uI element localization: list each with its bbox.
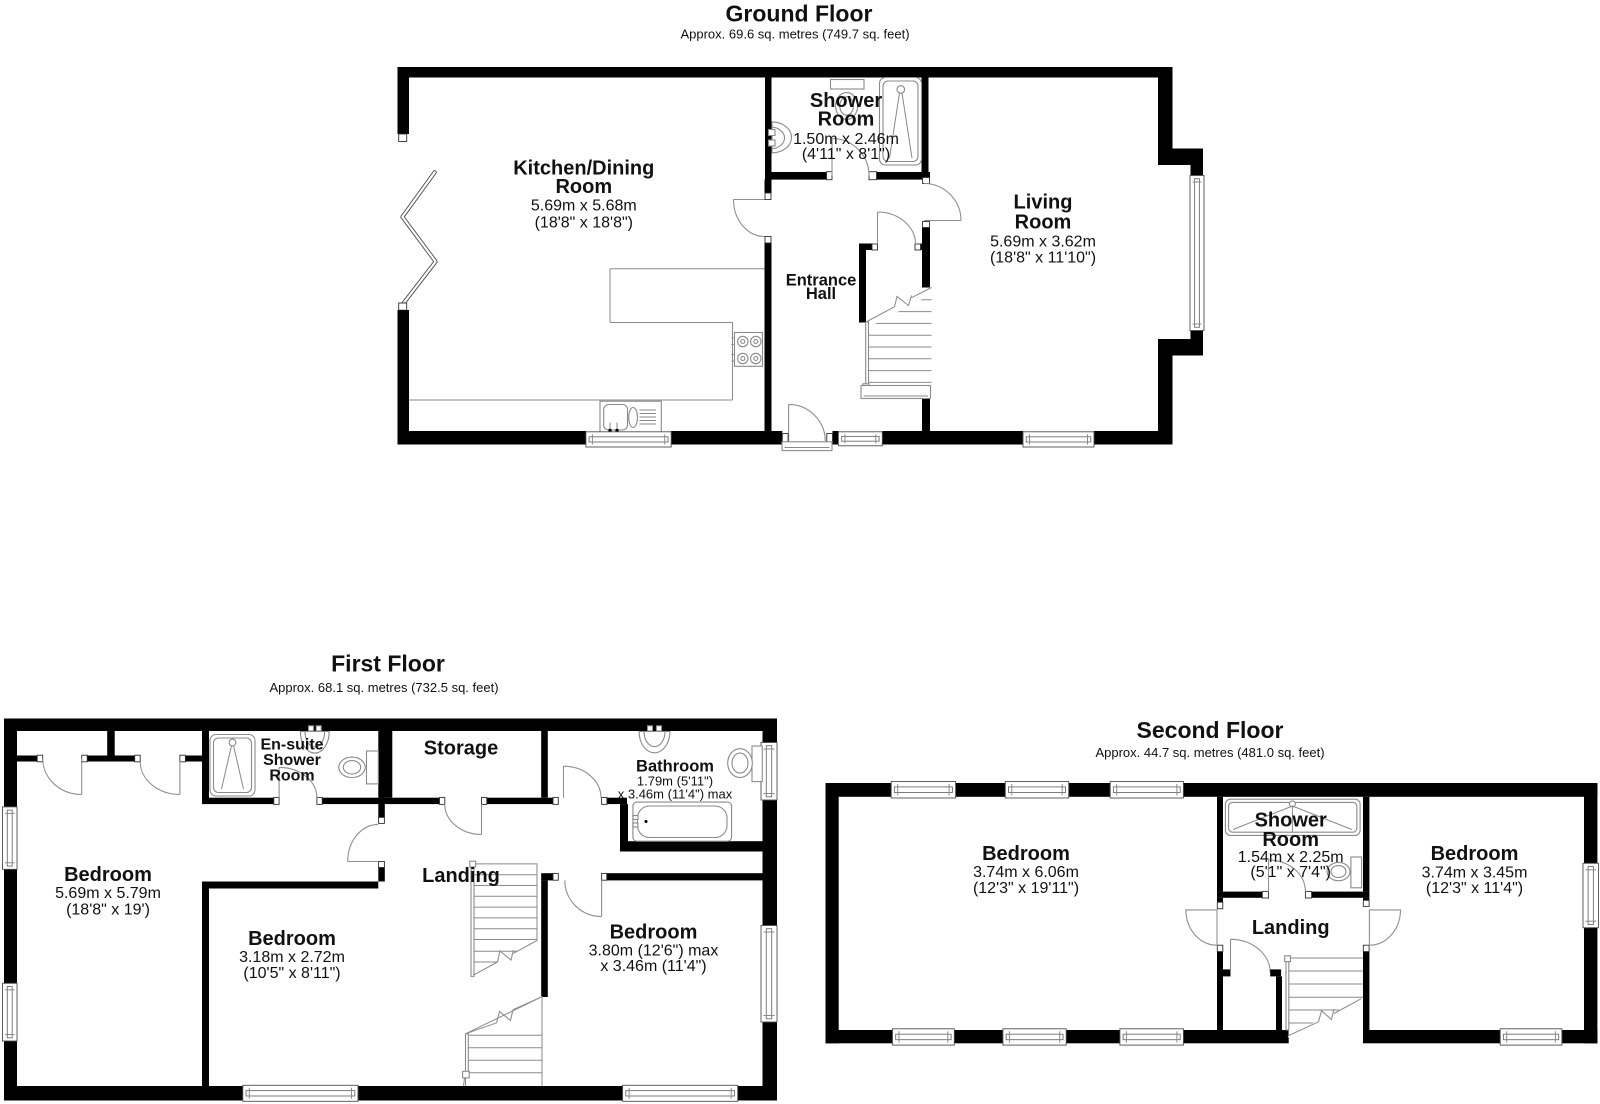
svg-text:Approx. 68.1 sq. metres (732.5: Approx. 68.1 sq. metres (732.5 sq. feet) bbox=[269, 680, 498, 695]
svg-text:5.69m x 3.62m: 5.69m x 3.62m bbox=[990, 234, 1096, 251]
svg-text:Bedroom: Bedroom bbox=[982, 843, 1070, 865]
svg-text:Bedroom: Bedroom bbox=[610, 922, 698, 944]
svg-text:Approx. 44.7 sq. metres (481.0: Approx. 44.7 sq. metres (481.0 sq. feet) bbox=[1095, 745, 1324, 760]
svg-text:3.80m (12'6") max: 3.80m (12'6") max bbox=[589, 943, 719, 960]
svg-text:(12'3" x 11'4"): (12'3" x 11'4") bbox=[1426, 880, 1523, 897]
svg-text:(18'8" x 11'10"): (18'8" x 11'10") bbox=[990, 250, 1096, 267]
svg-text:(18'8" x 19'): (18'8" x 19') bbox=[66, 902, 150, 919]
svg-text:Landing: Landing bbox=[1252, 917, 1330, 939]
svg-text:Second Floor: Second Floor bbox=[1137, 717, 1284, 743]
svg-text:(5'1" x 7'4"): (5'1" x 7'4") bbox=[1250, 864, 1331, 881]
svg-text:x 3.46m (11'4"): x 3.46m (11'4") bbox=[600, 958, 706, 975]
svg-text:(12'3" x 19'11"): (12'3" x 19'11") bbox=[973, 880, 1079, 897]
svg-text:Room: Room bbox=[1015, 212, 1072, 234]
svg-text:Room: Room bbox=[269, 768, 314, 785]
svg-text:Bedroom: Bedroom bbox=[1431, 843, 1519, 865]
svg-text:Room: Room bbox=[818, 108, 875, 130]
svg-text:Shower: Shower bbox=[263, 752, 321, 769]
svg-text:Bedroom: Bedroom bbox=[64, 864, 152, 886]
svg-text:(18'8" x 18'8"): (18'8" x 18'8") bbox=[535, 215, 633, 232]
svg-text:3.74m x 3.45m: 3.74m x 3.45m bbox=[1422, 865, 1528, 882]
svg-text:5.69m x 5.79m: 5.69m x 5.79m bbox=[55, 885, 161, 902]
svg-text:Bedroom: Bedroom bbox=[248, 928, 336, 950]
svg-text:(10'5" x 8'11"): (10'5" x 8'11") bbox=[243, 965, 340, 982]
svg-text:Approx. 69.6 sq. metres (749.7: Approx. 69.6 sq. metres (749.7 sq. feet) bbox=[680, 27, 909, 42]
svg-text:x 3.46m (11'4") max: x 3.46m (11'4") max bbox=[618, 787, 733, 802]
svg-text:Room: Room bbox=[555, 176, 612, 198]
svg-text:Ground Floor: Ground Floor bbox=[726, 1, 873, 27]
svg-text:5.69m x 5.68m: 5.69m x 5.68m bbox=[531, 198, 637, 215]
svg-text:Living: Living bbox=[1014, 192, 1073, 214]
svg-text:3.74m x 6.06m: 3.74m x 6.06m bbox=[973, 864, 1079, 881]
svg-text:First Floor: First Floor bbox=[331, 651, 445, 677]
svg-text:3.18m x 2.72m: 3.18m x 2.72m bbox=[239, 949, 345, 966]
svg-text:Storage: Storage bbox=[424, 738, 498, 760]
svg-text:En-suite: En-suite bbox=[260, 737, 323, 754]
svg-text:Landing: Landing bbox=[422, 865, 500, 887]
svg-text:Hall: Hall bbox=[806, 285, 836, 303]
svg-text:Room: Room bbox=[1262, 829, 1319, 851]
svg-text:(4'11" x 8'1"): (4'11" x 8'1") bbox=[802, 146, 890, 163]
